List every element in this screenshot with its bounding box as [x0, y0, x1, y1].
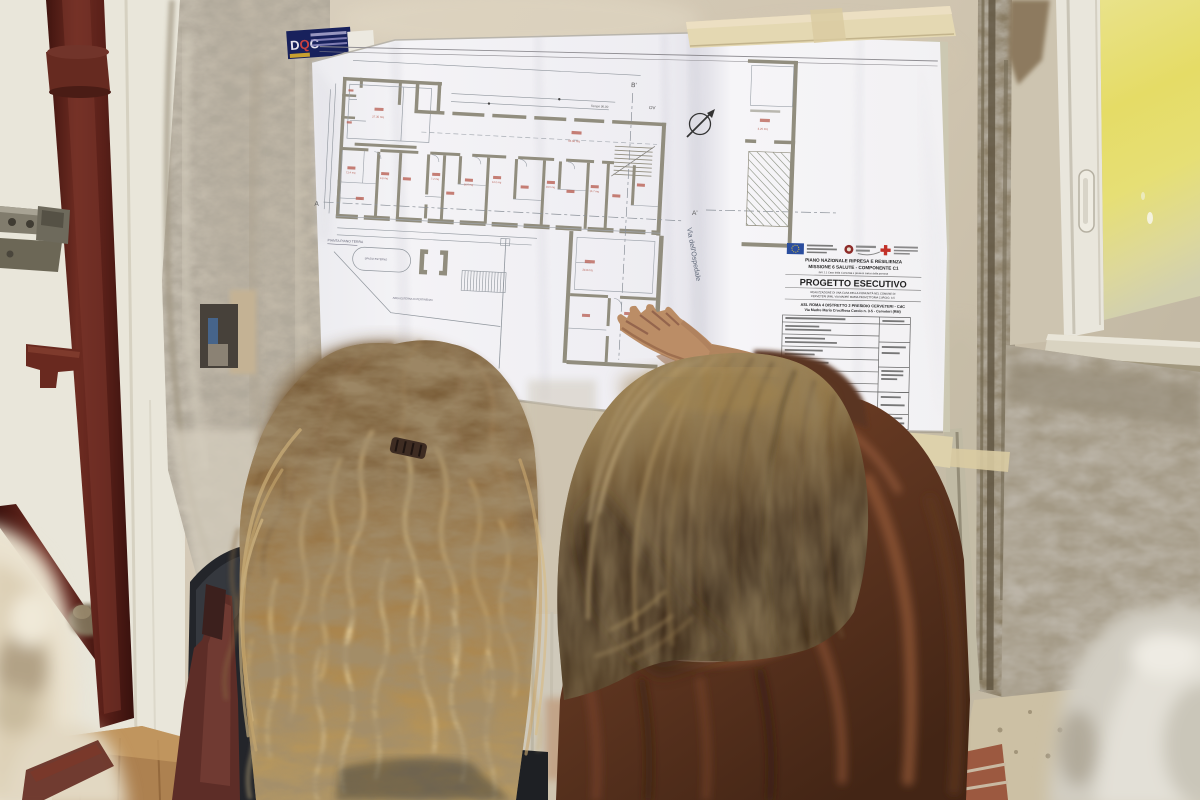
svg-text:16.5 mq: 16.5 mq [464, 182, 474, 187]
svg-text:9.8 mq: 9.8 mq [380, 176, 389, 180]
svg-text:14.2 mq: 14.2 mq [492, 180, 502, 185]
svg-text:24.8 mq: 24.8 mq [582, 268, 593, 273]
svg-text:7.2 mq: 7.2 mq [431, 177, 440, 181]
svg-text:A': A' [692, 210, 698, 217]
svg-text:27.35 mq: 27.35 mq [372, 114, 384, 119]
svg-text:4.20 mq: 4.20 mq [758, 127, 769, 131]
svg-text:11.4 mq: 11.4 mq [346, 170, 356, 175]
svg-text:OV: OV [649, 105, 656, 110]
svg-text:B': B' [631, 82, 637, 89]
svg-text:18.0 mq: 18.0 mq [546, 185, 556, 190]
svg-text:55.60 mq: 55.60 mq [568, 139, 580, 144]
svg-text:15.7 mq: 15.7 mq [589, 189, 599, 194]
